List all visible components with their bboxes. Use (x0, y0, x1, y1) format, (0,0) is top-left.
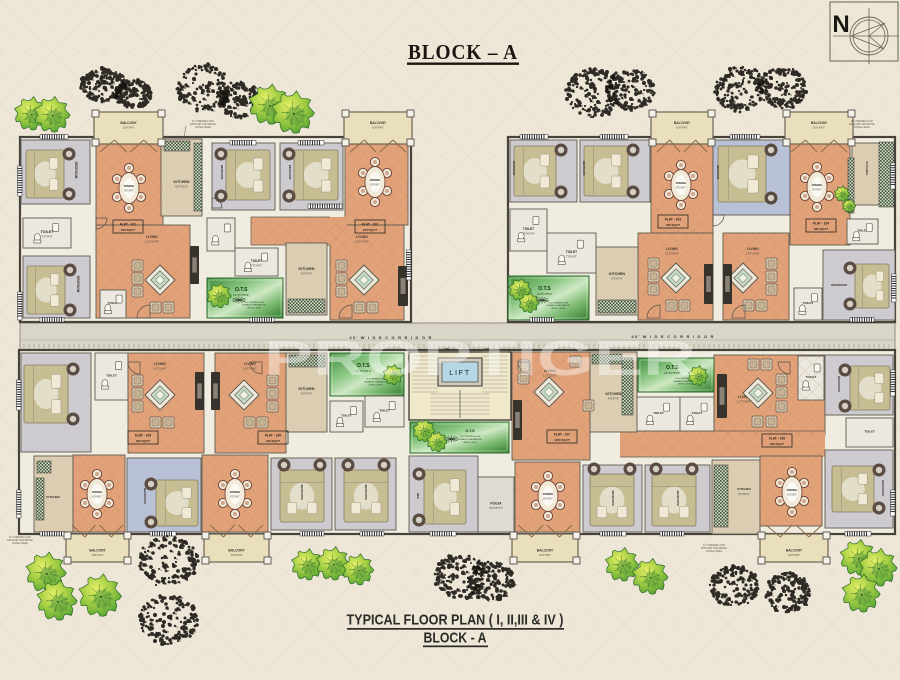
svg-text:6’0”X7’6”: 6’0”X7’6” (301, 272, 312, 276)
svg-text:BEDROOM: BEDROOM (364, 484, 368, 500)
svg-text:KITCHEN: KITCHEN (606, 392, 622, 396)
svg-text:FLAT - 101: FLAT - 101 (120, 223, 136, 227)
svg-text:BALCONY: BALCONY (674, 121, 691, 125)
svg-text:N: N (832, 11, 849, 38)
svg-text:KITCHEN: KITCHEN (299, 267, 315, 271)
svg-text:8’-0 OPENING FOR: 8’-0 OPENING FOR (460, 436, 480, 438)
svg-text:10’6”X4’0”: 10’6”X4’0” (813, 126, 825, 130)
svg-text:6’0”X7’6”: 6’0”X7’6” (301, 392, 312, 396)
svg-text:TOILET: TOILET (41, 230, 55, 234)
svg-text:LINTEL LEVEL: LINTEL LEVEL (463, 442, 479, 444)
svg-text:BALCONY: BALCONY (537, 548, 554, 552)
svg-text:KITCHEN: KITCHEN (737, 487, 750, 491)
svg-text:DINING: DINING (812, 183, 823, 187)
svg-text:10’6”X4’0”: 10’6”X4’0” (92, 553, 104, 557)
svg-text:TOILET: TOILET (251, 259, 262, 263)
svg-text:FLAT - 104: FLAT - 104 (813, 222, 829, 226)
svg-text:1150 SQ.FT: 1150 SQ.FT (554, 438, 570, 442)
svg-text:8’0”X9’6”: 8’0”X9’6” (543, 498, 553, 501)
svg-text:8’-0 OPENING FOR: 8’-0 OPENING FOR (548, 302, 568, 304)
svg-text:BEDROOM: BEDROOM (74, 162, 78, 179)
svg-text:7’0”X4’0”: 7’0”X4’0” (41, 235, 52, 239)
svg-text:6’0”X7’6”: 6’0”X7’6” (611, 277, 622, 281)
svg-text:8’0”X9’6”: 8’0”X9’6” (787, 494, 797, 497)
svg-text:KITCHEN: KITCHEN (46, 495, 59, 499)
svg-text:10’6”X4’0”: 10’6”X4’0” (372, 126, 384, 130)
svg-text:FLAT - 106: FLAT - 106 (265, 434, 281, 438)
svg-text:BEDROOM: BEDROOM (582, 161, 586, 176)
svg-text:LINTEL LEVEL: LINTEL LEVEL (551, 308, 567, 310)
svg-text:14’4½”X5’3”: 14’4½”X5’3” (233, 293, 249, 297)
svg-text:DINING: DINING (676, 181, 687, 185)
svg-text:EXHAUST FAN ABOVE: EXHAUST FAN ABOVE (243, 304, 267, 307)
svg-text:930 SQ.FT: 930 SQ.FT (814, 227, 828, 231)
svg-text:BLOCK - A: BLOCK - A (424, 630, 487, 647)
svg-text:EXHAUST FAN ABOVE: EXHAUST FAN ABOVE (458, 438, 482, 441)
svg-text:8’0”X9’6”: 8’0”X9’6” (812, 189, 822, 192)
svg-text:BEDROOM: BEDROOM (837, 376, 841, 392)
svg-text:975 SQ.FT: 975 SQ.FT (363, 228, 377, 232)
svg-text:6’0”X11’0”: 6’0”X11’0” (175, 185, 188, 189)
svg-text:DINING: DINING (787, 488, 798, 492)
svg-text:BEDROOM: BEDROOM (220, 165, 224, 180)
svg-text:8’0”X9’6”: 8’0”X9’6” (230, 496, 240, 499)
svg-text:TOILET: TOILET (653, 411, 664, 415)
svg-text:FLAT - 105: FLAT - 105 (135, 434, 151, 438)
svg-text:TOILET: TOILET (523, 227, 534, 231)
svg-text:BALCONY: BALCONY (811, 121, 828, 125)
svg-text:BEDROOM: BEDROOM (76, 276, 80, 293)
svg-text:LINTEL LEVEL: LINTEL LEVEL (195, 126, 212, 129)
svg-text:O.T.S: O.T.S (466, 429, 476, 433)
svg-text:10’6”X4’0”: 10’6”X4’0” (676, 126, 688, 130)
svg-text:BED: BED (416, 493, 420, 499)
svg-text:930 SQ.FT: 930 SQ.FT (136, 439, 150, 443)
svg-text:14’4½”X5’3”: 14’4½”X5’3” (536, 292, 552, 296)
svg-text:TOILET: TOILET (864, 430, 875, 434)
svg-text:BEDROOM: BEDROOM (143, 488, 147, 504)
svg-text:BEDROOM: BEDROOM (676, 490, 680, 506)
svg-text:KITCHEN: KITCHEN (865, 161, 869, 174)
svg-text:DINING: DINING (230, 490, 241, 494)
svg-text:BALCONY: BALCONY (370, 121, 387, 125)
svg-text:DINING: DINING (124, 184, 135, 188)
svg-text:8’0”X9’6”: 8’0”X9’6” (370, 184, 380, 187)
svg-text:BEDROOM: BEDROOM (611, 490, 615, 506)
svg-text:TOILET: TOILET (379, 409, 390, 413)
svg-text:FLAT - 107: FLAT - 107 (554, 433, 570, 437)
svg-text:BALCONY: BALCONY (89, 548, 106, 552)
svg-text:8’0”X9’6”: 8’0”X9’6” (124, 190, 134, 193)
svg-text:8’-0 OPENING FOR: 8’-0 OPENING FOR (244, 302, 264, 304)
svg-text:DINING: DINING (92, 490, 103, 494)
svg-text:DINING: DINING (543, 492, 554, 496)
svg-text:POOJA: POOJA (490, 502, 502, 506)
svg-text:LINTEL LEVEL: LINTEL LEVEL (854, 126, 871, 129)
svg-text:6’0”X7’6”: 6’0”X7’6” (608, 397, 619, 401)
svg-text:EXHAUST FAN ABOVE: EXHAUST FAN ABOVE (547, 304, 571, 307)
svg-text:KITCHEN: KITCHEN (299, 387, 315, 391)
svg-text:TOILET: TOILET (106, 374, 117, 378)
svg-text:BLOCK – A: BLOCK – A (408, 40, 518, 64)
svg-text:BEDROOM: BEDROOM (716, 165, 720, 180)
svg-text:TOILET: TOILET (566, 250, 577, 254)
svg-text:6’0”X10’0”: 6’0”X10’0” (738, 493, 750, 496)
svg-text:7’0”X4’0”: 7’0”X4’0” (566, 255, 577, 259)
svg-text:BALCONY: BALCONY (120, 121, 137, 125)
svg-text:10’6”X4’0”: 10’6”X4’0” (231, 553, 243, 557)
svg-text:BALCONY: BALCONY (228, 548, 245, 552)
svg-text:940 SQ.FT: 940 SQ.FT (266, 439, 280, 443)
svg-text:FLAT - 103: FLAT - 103 (665, 218, 681, 222)
svg-text:TOILET: TOILET (692, 411, 703, 415)
svg-text:10’6”X4’0”: 10’6”X4’0” (123, 126, 135, 130)
svg-text:KITCHEN: KITCHEN (174, 180, 190, 184)
svg-text:10’6”X4’0”: 10’6”X4’0” (788, 553, 800, 557)
svg-text:LINTEL LEVEL: LINTEL LEVEL (706, 550, 723, 553)
svg-text:FLAT - 108: FLAT - 108 (769, 437, 785, 441)
svg-text:975 SQ.FT: 975 SQ.FT (666, 223, 680, 227)
svg-text:BEDROOM: BEDROOM (512, 161, 516, 176)
svg-text:TYPICAL FLOOR PLAN ( I, II,III: TYPICAL FLOOR PLAN ( I, II,III & IV ) (347, 612, 564, 629)
svg-text:KITCHEN: KITCHEN (609, 272, 625, 276)
svg-text:7’0”X4’0”: 7’0”X4’0” (251, 264, 262, 268)
svg-text:FLAT - 102: FLAT - 102 (362, 223, 378, 227)
svg-text:DINING: DINING (370, 178, 381, 182)
svg-text:BEDROOM: BEDROOM (881, 480, 885, 496)
svg-text:BEDROOM: BEDROOM (288, 165, 292, 180)
svg-text:940 SQ.FT: 940 SQ.FT (770, 442, 784, 446)
svg-text:BALCONY: BALCONY (786, 548, 803, 552)
svg-text:BEDROOM: BEDROOM (300, 484, 304, 500)
svg-text:BEDROOM: BEDROOM (831, 283, 847, 287)
svg-text:LINTEL LEVEL: LINTEL LEVEL (12, 542, 29, 545)
svg-text:PROPTIGER: PROPTIGER (264, 332, 696, 386)
svg-text:LINTEL LEVEL: LINTEL LEVEL (247, 307, 263, 309)
svg-text:8’0”X9’6”: 8’0”X9’6” (676, 187, 686, 190)
svg-text:940 SQ.FT: 940 SQ.FT (121, 228, 135, 232)
svg-text:8’0”X9’6”: 8’0”X9’6” (92, 496, 102, 499)
svg-text:10’6”X4’0”: 10’6”X4’0” (539, 553, 551, 557)
svg-text:4’6”X5’7½”: 4’6”X5’7½” (489, 506, 503, 510)
